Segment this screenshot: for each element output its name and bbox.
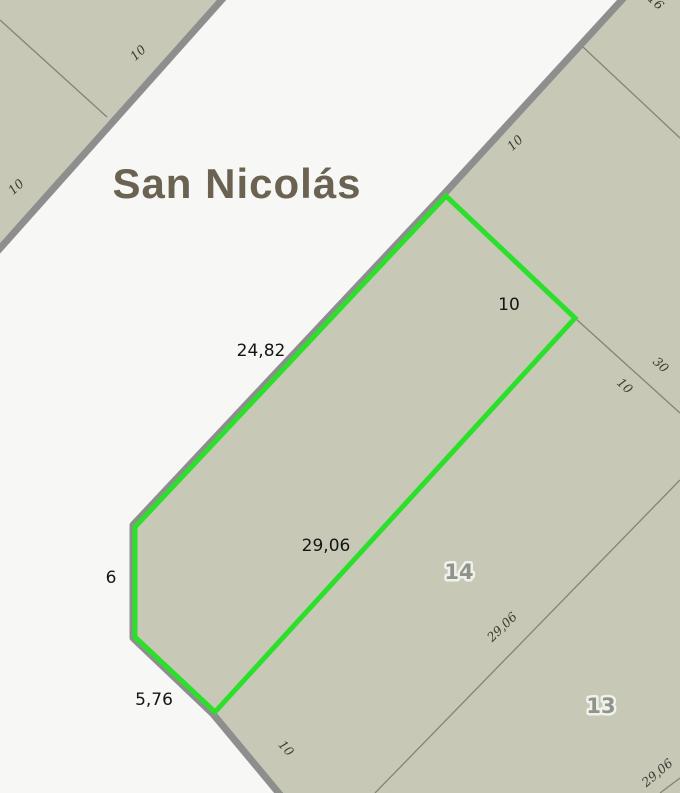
dimension-side-ne: 10 bbox=[498, 295, 520, 315]
dimension-side-se: 29,06 bbox=[302, 536, 351, 556]
cadastral-map-viewport[interactable]: 10 10 16 10 30 10 29,06 29,06 10 10 24,8… bbox=[0, 0, 680, 793]
street-name-label: San Nicolás bbox=[112, 160, 361, 207]
dimension-side-sw: 5,76 bbox=[135, 690, 173, 710]
dimension-frontage: 24,82 bbox=[237, 341, 286, 361]
parcel-number-14: 14 bbox=[444, 560, 473, 584]
parcel-number-13: 13 bbox=[586, 694, 615, 718]
dimension-side-west: 6 bbox=[106, 568, 117, 588]
